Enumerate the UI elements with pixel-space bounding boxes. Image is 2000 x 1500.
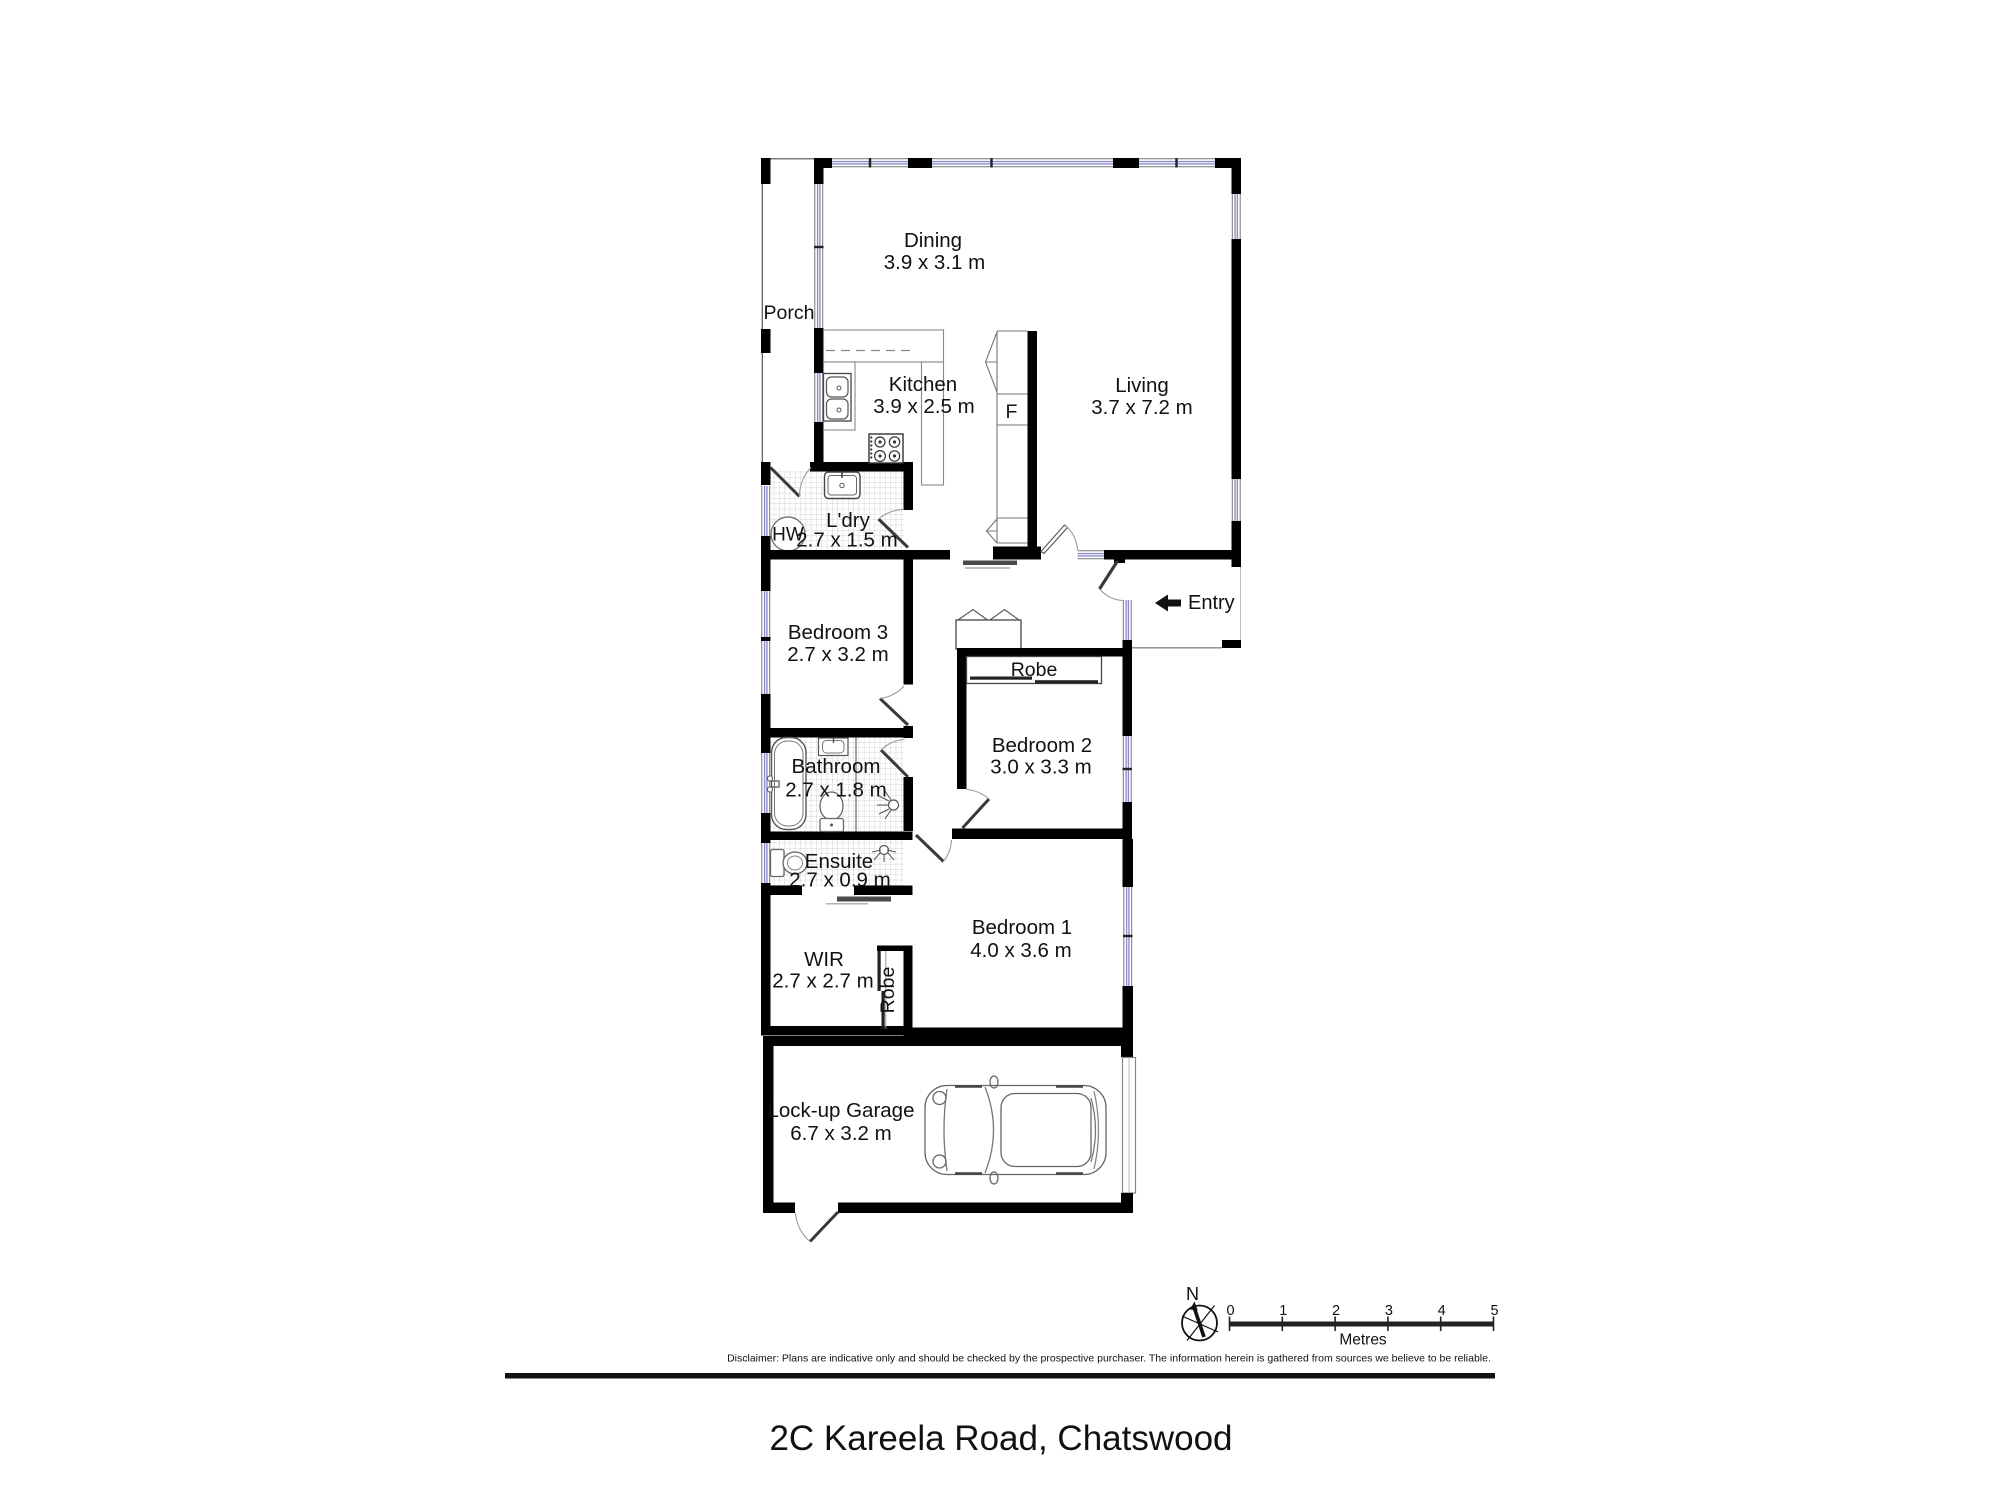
svg-text:Bedroom 3: Bedroom 3 [788, 621, 888, 644]
svg-text:2.7 x 0.9 m: 2.7 x 0.9 m [789, 869, 890, 892]
svg-text:F: F [1006, 401, 1018, 423]
svg-text:Living: Living [1115, 374, 1169, 397]
svg-text:Entry: Entry [1188, 592, 1235, 614]
svg-text:2: 2 [1332, 1303, 1340, 1319]
svg-text:3: 3 [1385, 1303, 1393, 1319]
svg-text:4: 4 [1438, 1303, 1446, 1319]
svg-text:4.0 x 3.6 m: 4.0 x 3.6 m [970, 939, 1071, 962]
svg-text:0: 0 [1226, 1303, 1234, 1319]
svg-text:6.7 x 3.2 m: 6.7 x 3.2 m [790, 1122, 891, 1145]
svg-text:3.9 x 2.5 m: 3.9 x 2.5 m [873, 395, 974, 418]
svg-text:Disclaimer: Plans are indicati: Disclaimer: Plans are indicative only an… [727, 1353, 1491, 1365]
svg-text:Metres: Metres [1339, 1332, 1387, 1349]
svg-text:2.7 x 1.5 m: 2.7 x 1.5 m [796, 529, 897, 552]
svg-text:WIR: WIR [804, 948, 844, 971]
svg-text:Kitchen: Kitchen [889, 373, 957, 396]
svg-text:Lock-up Garage: Lock-up Garage [767, 1099, 914, 1122]
svg-text:Robe: Robe [1011, 659, 1058, 681]
svg-text:2C Kareela Road, Chatswood: 2C Kareela Road, Chatswood [769, 1419, 1232, 1458]
svg-text:2.7 x 3.2 m: 2.7 x 3.2 m [787, 643, 888, 666]
svg-text:Robe: Robe [877, 967, 899, 1014]
svg-text:3.0 x 3.3 m: 3.0 x 3.3 m [990, 756, 1091, 779]
svg-text:Porch: Porch [764, 302, 815, 324]
svg-text:Bedroom 2: Bedroom 2 [992, 734, 1092, 757]
svg-text:3.9 x 3.1 m: 3.9 x 3.1 m [884, 251, 985, 274]
svg-text:5: 5 [1490, 1303, 1498, 1319]
svg-text:Bathroom: Bathroom [792, 755, 881, 778]
svg-text:Dining: Dining [904, 229, 962, 252]
svg-text:N: N [1186, 1284, 1199, 1304]
svg-text:2.7 x 1.8 m: 2.7 x 1.8 m [785, 779, 886, 802]
svg-text:1: 1 [1279, 1303, 1287, 1319]
svg-text:2.7 x 2.7 m: 2.7 x 2.7 m [772, 970, 873, 993]
svg-text:Bedroom 1: Bedroom 1 [972, 916, 1072, 939]
svg-text:3.7 x 7.2 m: 3.7 x 7.2 m [1091, 396, 1192, 419]
